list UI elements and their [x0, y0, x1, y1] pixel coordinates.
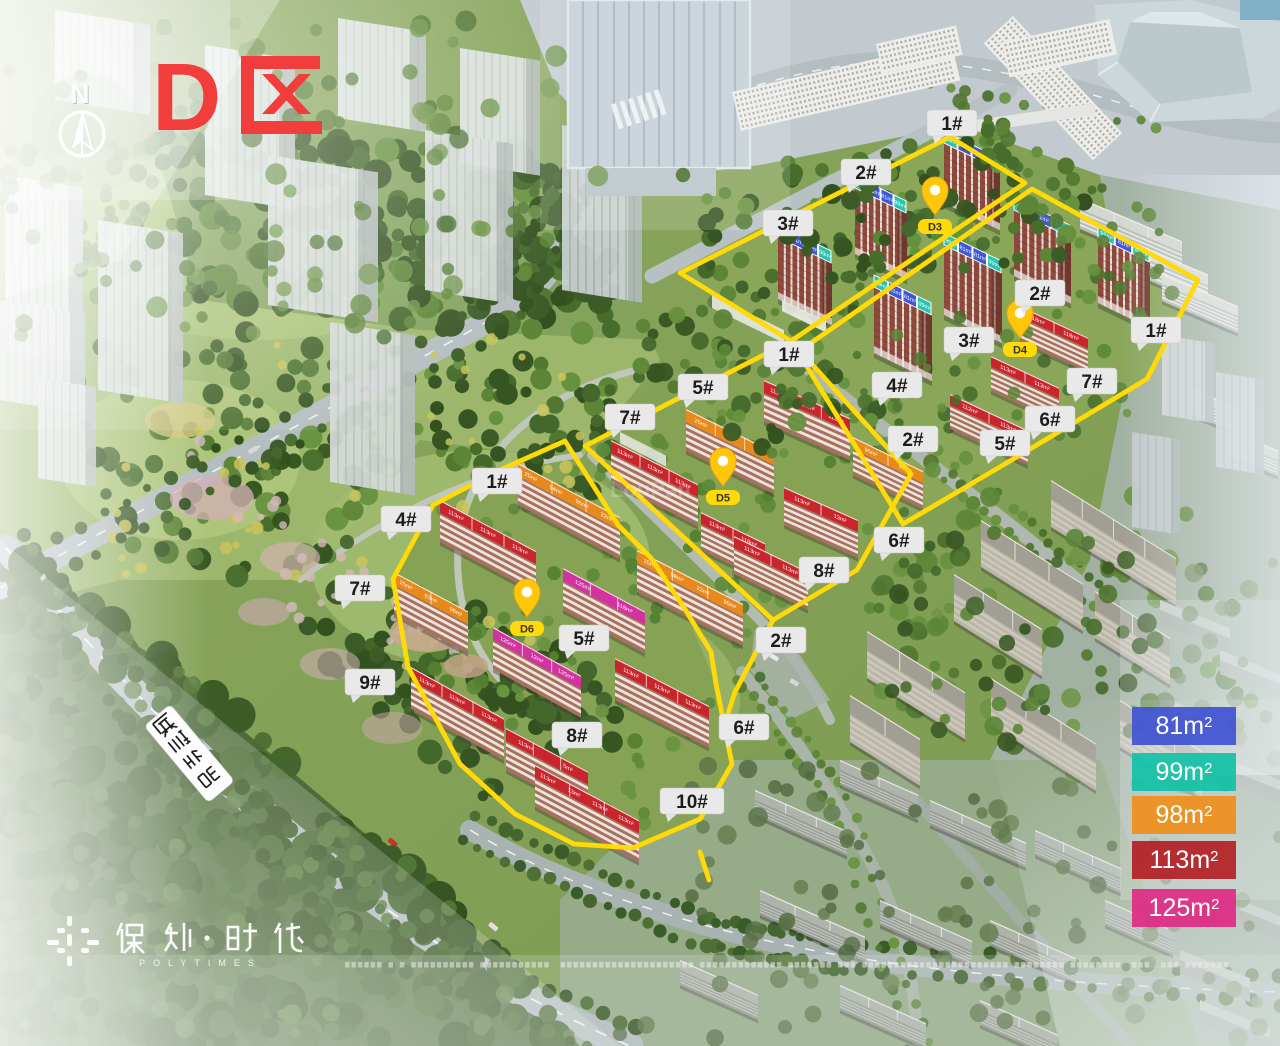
svg-text:D6: D6: [520, 624, 534, 636]
svg-text:8#: 8#: [813, 561, 835, 582]
svg-text:1#: 1#: [1145, 321, 1167, 342]
svg-text:D4: D4: [1013, 345, 1028, 357]
svg-text:3#: 3#: [777, 214, 799, 235]
svg-text:3#: 3#: [958, 331, 980, 352]
svg-text:99m2: 99m2: [1156, 758, 1213, 786]
svg-text:7#: 7#: [619, 408, 641, 429]
svg-text:8#: 8#: [566, 726, 588, 747]
svg-text:7#: 7#: [349, 579, 371, 600]
svg-text:5#: 5#: [692, 378, 714, 399]
svg-text:2#: 2#: [1029, 284, 1051, 305]
svg-text:113m2: 113m2: [1149, 846, 1218, 874]
svg-text:N: N: [71, 79, 90, 109]
svg-text:6#: 6#: [733, 718, 755, 739]
svg-text:1#: 1#: [778, 345, 800, 366]
svg-text:2#: 2#: [855, 163, 877, 184]
svg-text:LouPan: LouPan: [610, 477, 691, 502]
svg-text:2#: 2#: [770, 631, 792, 652]
svg-text:9#: 9#: [359, 673, 381, 694]
svg-text:4#: 4#: [395, 510, 417, 531]
svg-text:7#: 7#: [1081, 372, 1103, 393]
svg-text:D: D: [152, 44, 221, 151]
svg-text:5#: 5#: [573, 629, 595, 650]
svg-text:1#: 1#: [941, 114, 963, 135]
svg-text:D3: D3: [928, 222, 942, 234]
svg-text:D5: D5: [716, 493, 730, 505]
svg-text:5#: 5#: [994, 434, 1016, 455]
svg-text:POLYTIMES: POLYTIMES: [139, 958, 262, 968]
svg-text:98m2: 98m2: [1156, 801, 1213, 829]
svg-text:125m2: 125m2: [1149, 894, 1220, 922]
svg-text:2#: 2#: [902, 430, 924, 451]
svg-text:10#: 10#: [676, 792, 708, 813]
svg-text:6#: 6#: [1039, 410, 1061, 431]
svg-text:4#: 4#: [886, 376, 908, 397]
svg-text:1#: 1#: [486, 472, 508, 493]
svg-text:81m2: 81m2: [1156, 712, 1213, 740]
svg-text:6#: 6#: [888, 531, 910, 552]
